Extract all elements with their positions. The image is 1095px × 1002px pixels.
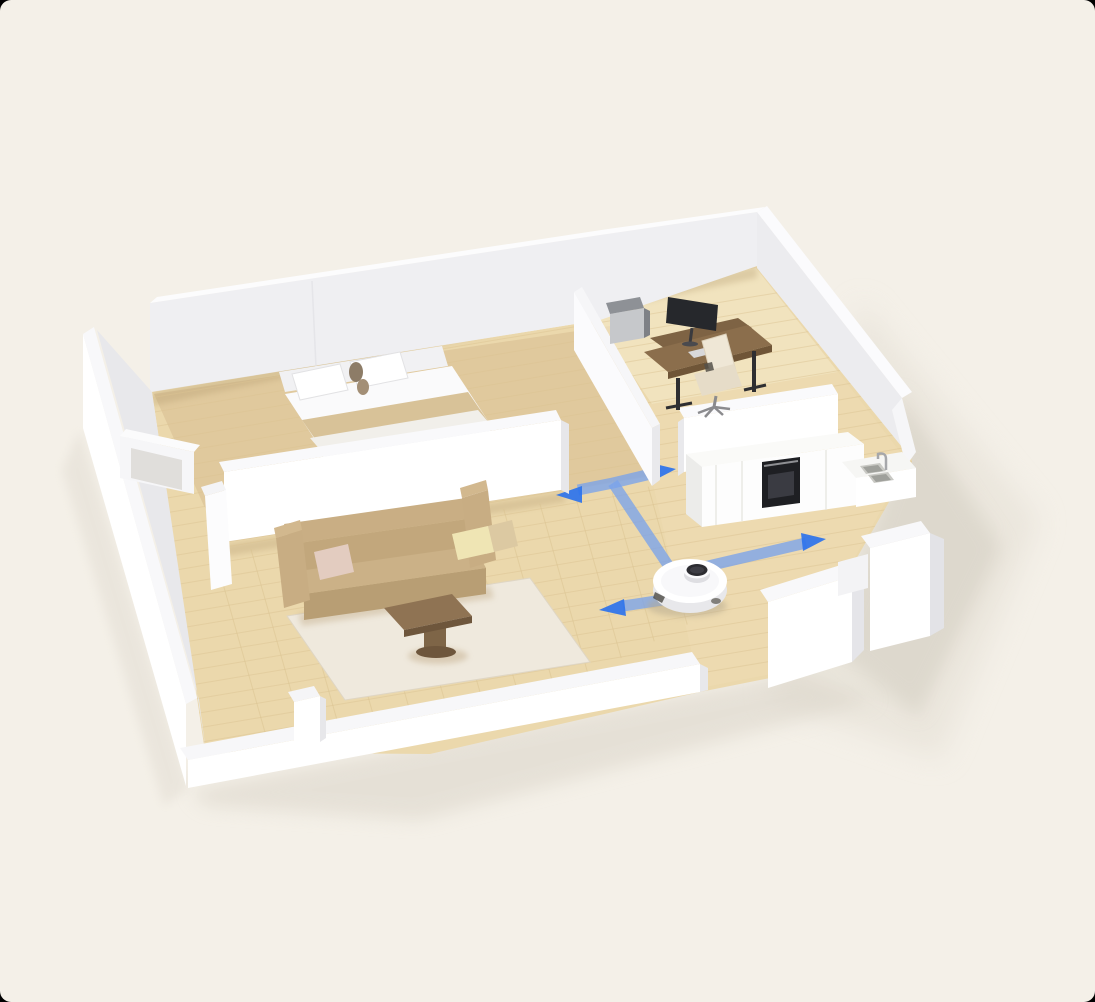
office-chair-post xyxy=(714,396,716,407)
robot-vacuum-sensor-sheen xyxy=(690,567,704,574)
robot-vacuum-wheel xyxy=(711,598,721,604)
bed-cushion-small-2 xyxy=(357,379,369,395)
bed-cushion-small-1 xyxy=(349,362,363,382)
coffee-table-base xyxy=(416,646,456,658)
entry-wall-right-side xyxy=(930,533,944,636)
wall-device-front xyxy=(610,308,644,344)
office-partition-end-cap xyxy=(652,424,660,486)
monitor-base xyxy=(682,342,698,347)
kitchen-back-wall-cap xyxy=(678,418,684,476)
wall-device-side xyxy=(644,308,650,338)
scene-root xyxy=(62,206,1040,820)
front-door-jamb-face xyxy=(294,696,320,748)
monitor-stand xyxy=(690,328,692,343)
floorplan-illustration xyxy=(0,0,1095,1002)
front-door-jamb-side xyxy=(320,696,326,742)
entry-wall-right-face xyxy=(870,533,930,651)
divider-wall-end-cap xyxy=(561,420,569,494)
oven-window xyxy=(768,471,794,499)
robot-path-west xyxy=(578,483,613,490)
apartment-3d-render xyxy=(0,0,1095,1002)
front-wall-end-cap xyxy=(700,664,708,692)
